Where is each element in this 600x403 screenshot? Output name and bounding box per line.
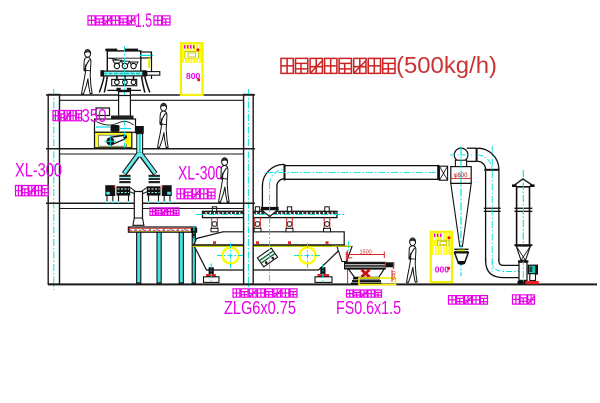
svg-text:1.5: 1.5 <box>135 11 152 32</box>
svg-text:XL-300: XL-300 <box>178 164 223 185</box>
svg-text:ZLG6x0.75: ZLG6x0.75 <box>224 298 296 318</box>
svg-text:FS0.6x1.5: FS0.6x1.5 <box>336 298 401 318</box>
svg-text:000: 000 <box>435 265 449 275</box>
svg-text:540: 540 <box>392 271 398 280</box>
svg-text:350: 350 <box>82 106 107 126</box>
svg-text:(500kg/h): (500kg/h) <box>396 52 497 78</box>
svg-text:XL-300: XL-300 <box>15 160 62 181</box>
